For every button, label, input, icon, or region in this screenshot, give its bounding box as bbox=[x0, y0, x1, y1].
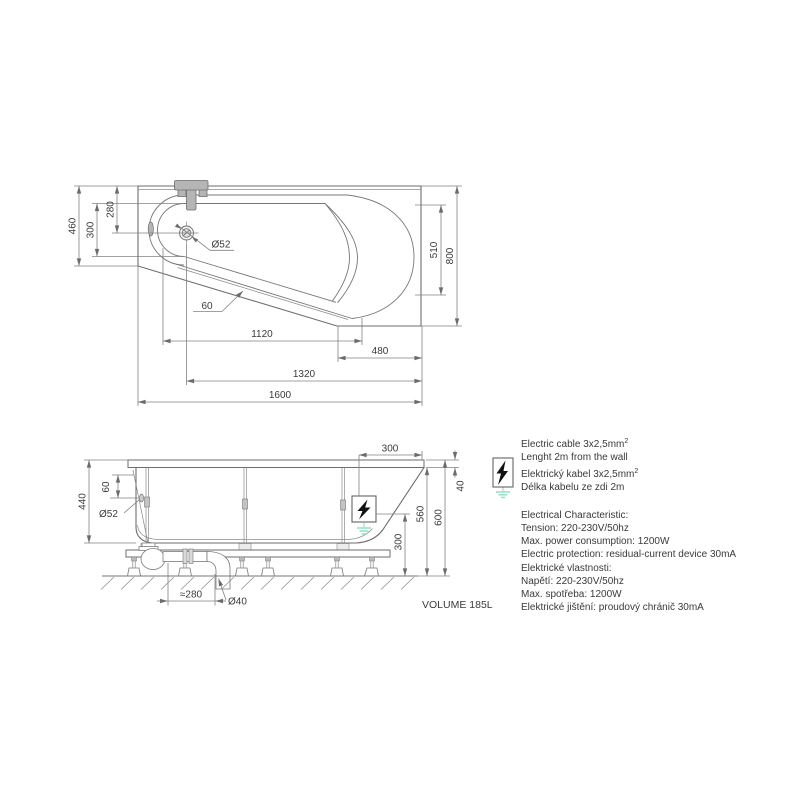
note-protection-en: Electric protection: residual-current de… bbox=[521, 549, 736, 560]
electric-unit bbox=[352, 496, 376, 534]
dim-280-approx-label: ≈280 bbox=[180, 590, 203, 601]
basin-outline bbox=[158, 204, 358, 303]
dimension-lines-top-view bbox=[79, 186, 457, 402]
dim-300-outlet-label: 300 bbox=[394, 533, 405, 550]
note-cable-en: Electric cable 3x2,5mm2 bbox=[521, 438, 628, 450]
frame-brace bbox=[133, 470, 149, 548]
note-power-en: Max. power consumption: 1200W bbox=[521, 536, 670, 547]
extension-lines-top-view bbox=[74, 186, 462, 406]
dim-460-label: 460 bbox=[68, 217, 79, 234]
technical-drawing-bathtub: 460 300 280 800 510 Ø52 60 1120 480 1320… bbox=[0, 0, 800, 800]
dim-40-label: 40 bbox=[456, 480, 467, 492]
extension-lines-side-view bbox=[84, 451, 459, 606]
note-power-cz: Max. spotřeba: 1200W bbox=[521, 589, 622, 600]
note-tension-en: Tension: 220-230V/50hz bbox=[521, 523, 629, 534]
dim-300-label: 300 bbox=[86, 221, 97, 238]
notes-block: Electric cable 3x2,5mm2 Lenght 2m from t… bbox=[493, 438, 736, 613]
overflow-marker bbox=[148, 222, 153, 236]
dimension-lines-side-view bbox=[89, 451, 455, 602]
dim-560-label: 560 bbox=[416, 505, 427, 522]
drain-diameter-label: Ø52 bbox=[212, 240, 231, 251]
dim-60-label: 60 bbox=[101, 481, 112, 493]
dim-1320-label: 1320 bbox=[293, 369, 316, 380]
ground-hatching bbox=[101, 576, 418, 590]
dim-800-label: 800 bbox=[445, 247, 456, 264]
top-view: 460 300 280 800 510 Ø52 60 1120 480 1320… bbox=[68, 181, 463, 407]
tub-inner-bottom-line bbox=[138, 525, 373, 540]
tub-body-side bbox=[136, 468, 424, 544]
dim-510-label: 510 bbox=[429, 241, 440, 258]
note-char-title-cz: Elektrické vlastnosti: bbox=[521, 563, 612, 574]
tub-rim-side bbox=[128, 460, 424, 468]
overflow-diameter-label: Ø52 bbox=[99, 509, 118, 520]
note-cable-cz: Elektrický kabel 3x2,5mm2 bbox=[521, 468, 638, 480]
dim-1600-label: 1600 bbox=[269, 390, 292, 401]
dim-1120-label: 1120 bbox=[251, 329, 273, 340]
note-tension-cz: Napětí: 220-230V/50hz bbox=[521, 576, 624, 587]
note-length-en: Lenght 2m from the wall bbox=[521, 452, 628, 463]
side-view: 440 60 Ø52 300 40 600 560 300 ≈280 Ø40 V… bbox=[78, 444, 493, 612]
note-length-cz: Délka kabelu ze zdi 2m bbox=[521, 482, 624, 493]
note-char-title-en: Electrical Characteristic: bbox=[521, 510, 628, 521]
rim-width-label: 60 bbox=[201, 301, 213, 312]
volume-label: VOLUME 185L bbox=[422, 599, 493, 611]
note-protection-cz: Elektrické jištění: proudový chránič 30m… bbox=[521, 602, 704, 613]
dim-440-label: 440 bbox=[78, 493, 89, 510]
dim-280-label: 280 bbox=[106, 201, 117, 218]
tub-rim-lines bbox=[138, 190, 421, 320]
electric-symbol bbox=[493, 458, 513, 497]
dim-480-label: 480 bbox=[372, 346, 389, 357]
pipe-diameter-label: Ø40 bbox=[228, 597, 247, 608]
dim-600-label: 600 bbox=[434, 509, 445, 526]
backrest-crescent bbox=[325, 204, 358, 303]
ground-symbol-icon bbox=[496, 488, 510, 498]
dim-300-top-label: 300 bbox=[382, 444, 399, 455]
support-rods bbox=[141, 468, 349, 551]
faucet-fixture bbox=[175, 181, 209, 211]
overflow-side bbox=[140, 494, 144, 502]
